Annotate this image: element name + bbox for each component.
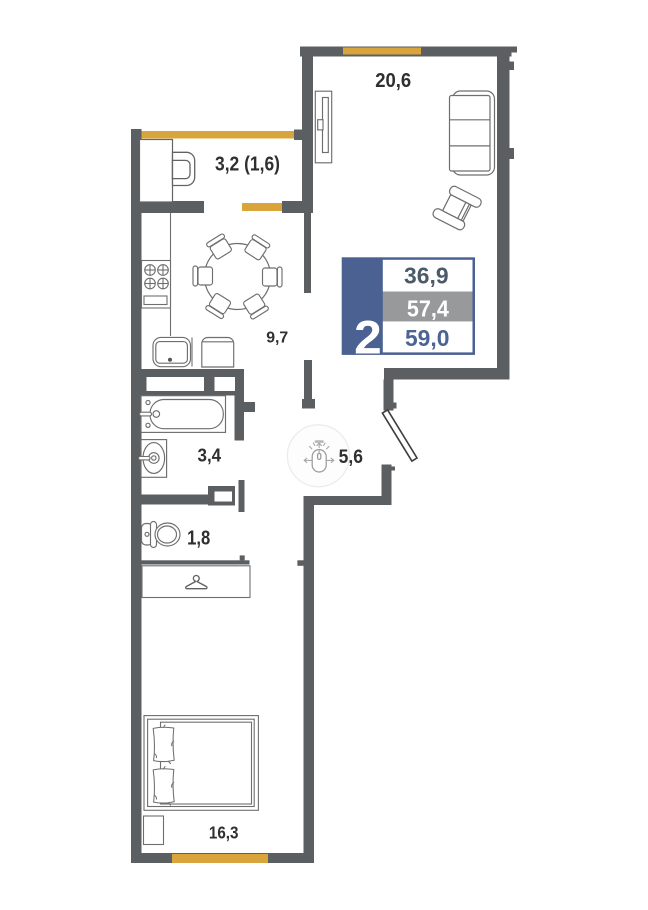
svg-text:3,2 (1,6): 3,2 (1,6)	[215, 153, 280, 175]
svg-text:2: 2	[354, 311, 382, 364]
svg-text:16,3: 16,3	[209, 823, 239, 843]
svg-text:1,8: 1,8	[187, 528, 210, 550]
svg-text:3,4: 3,4	[198, 445, 222, 465]
svg-text:57,4: 57,4	[407, 296, 449, 322]
svg-text:5,6: 5,6	[339, 447, 363, 468]
svg-text:59,0: 59,0	[405, 325, 450, 351]
svg-text:9,7: 9,7	[266, 330, 288, 347]
svg-text:36,9: 36,9	[404, 263, 449, 289]
svg-text:20,6: 20,6	[375, 70, 411, 92]
